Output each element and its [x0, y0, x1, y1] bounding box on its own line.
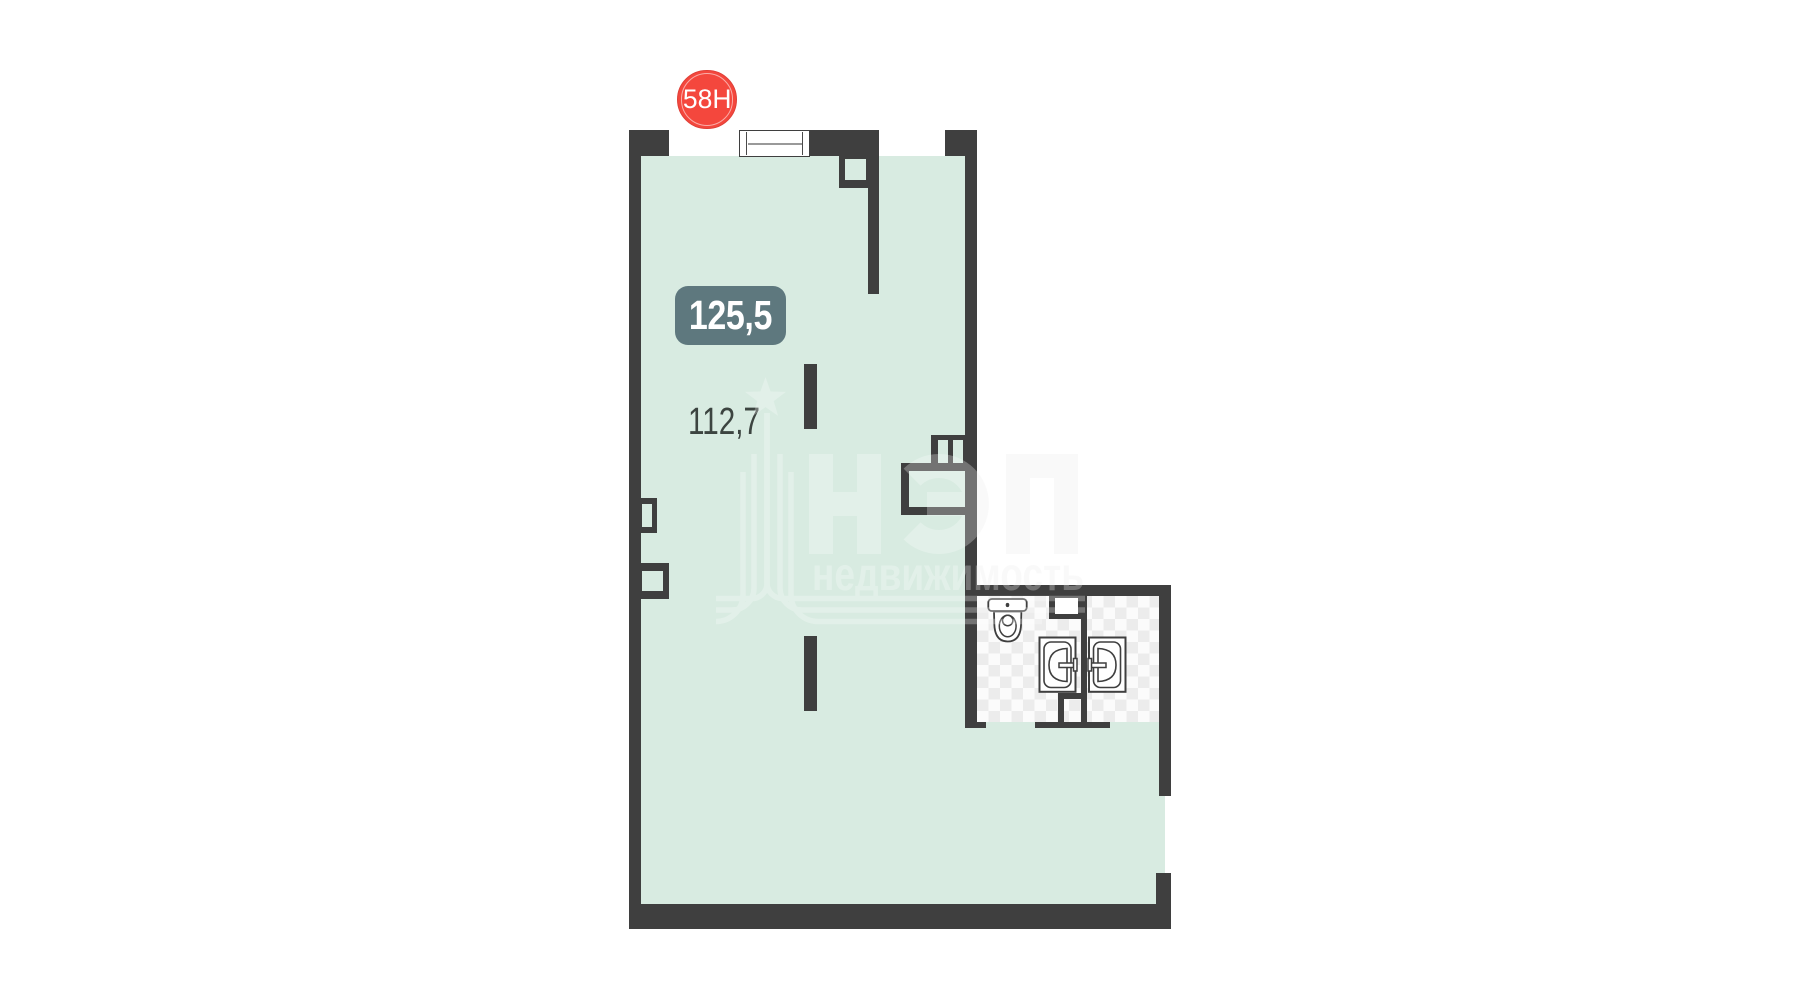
svg-text:недвижимость: недвижимость [812, 548, 1084, 600]
